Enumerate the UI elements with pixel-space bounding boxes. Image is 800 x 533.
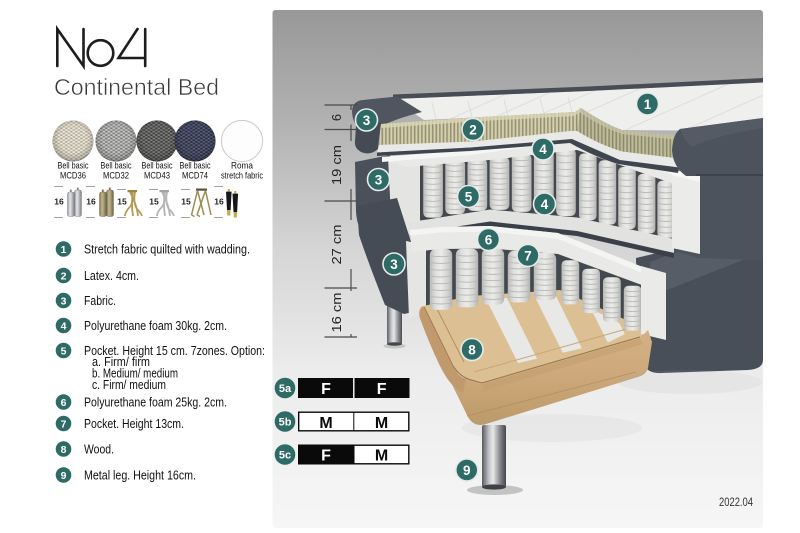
svg-text:M: M: [319, 415, 332, 432]
svg-text:MCD43: MCD43: [144, 171, 170, 182]
svg-text:3: 3: [61, 295, 67, 307]
svg-text:Fabric.: Fabric.: [84, 293, 116, 308]
svg-text:5c: 5c: [279, 450, 291, 462]
svg-text:9: 9: [61, 470, 67, 482]
svg-text:c. Firm/ medium: c. Firm/ medium: [92, 377, 166, 392]
svg-text:F: F: [321, 381, 331, 398]
svg-text:3: 3: [390, 257, 398, 272]
svg-text:5: 5: [61, 345, 67, 357]
svg-text:2022.04: 2022.04: [719, 497, 753, 509]
svg-text:9: 9: [463, 463, 471, 478]
svg-text:6: 6: [329, 114, 344, 121]
svg-text:2: 2: [469, 122, 477, 137]
svg-text:16: 16: [86, 197, 96, 207]
svg-text:Wood.: Wood.: [84, 442, 114, 457]
svg-text:7: 7: [524, 248, 532, 263]
svg-text:5a: 5a: [279, 383, 292, 395]
svg-text:6: 6: [485, 232, 493, 247]
svg-text:Continental Bed: Continental Bed: [54, 74, 219, 100]
svg-text:1: 1: [61, 244, 67, 256]
svg-text:Polyurethane foam 30kg. 2cm.: Polyurethane foam 30kg. 2cm.: [84, 318, 227, 333]
svg-text:F: F: [377, 381, 387, 398]
svg-text:16 cm: 16 cm: [329, 293, 344, 333]
svg-text:16: 16: [214, 197, 224, 207]
svg-text:27 cm: 27 cm: [329, 225, 344, 265]
svg-text:MCD32: MCD32: [103, 171, 129, 182]
svg-text:Latex. 4cm.: Latex. 4cm.: [84, 268, 139, 283]
svg-text:Polyurethane foam 25kg. 2cm.: Polyurethane foam 25kg. 2cm.: [84, 395, 227, 410]
svg-text:2: 2: [61, 270, 67, 282]
svg-text:15: 15: [149, 197, 159, 207]
svg-text:8: 8: [61, 444, 67, 456]
svg-text:F: F: [321, 448, 331, 465]
svg-text:stretch fabric: stretch fabric: [221, 171, 263, 182]
svg-text:16: 16: [54, 197, 64, 207]
svg-text:M: M: [375, 415, 388, 432]
svg-text:7: 7: [61, 418, 67, 430]
svg-text:4: 4: [539, 142, 547, 157]
svg-text:1: 1: [644, 97, 652, 112]
svg-text:3: 3: [363, 113, 371, 128]
svg-text:M: M: [375, 448, 388, 465]
svg-text:19 cm: 19 cm: [329, 145, 344, 185]
svg-text:MCD36: MCD36: [60, 171, 86, 182]
svg-text:5: 5: [465, 189, 473, 204]
svg-text:15: 15: [117, 197, 127, 207]
svg-text:3: 3: [375, 172, 383, 187]
svg-text:MCD74: MCD74: [182, 171, 208, 182]
svg-text:5b: 5b: [279, 417, 292, 429]
svg-text:Stretch fabric quilted with wa: Stretch fabric quilted with wadding.: [84, 242, 250, 257]
svg-text:4: 4: [541, 197, 549, 212]
svg-text:15: 15: [181, 197, 191, 207]
svg-text:Pocket. Height 13cm.: Pocket. Height 13cm.: [84, 416, 184, 431]
svg-text:6: 6: [61, 397, 67, 409]
svg-text:Metal leg. Height 16cm.: Metal leg. Height 16cm.: [84, 468, 196, 483]
svg-text:4: 4: [61, 320, 67, 332]
svg-text:8: 8: [468, 342, 476, 357]
